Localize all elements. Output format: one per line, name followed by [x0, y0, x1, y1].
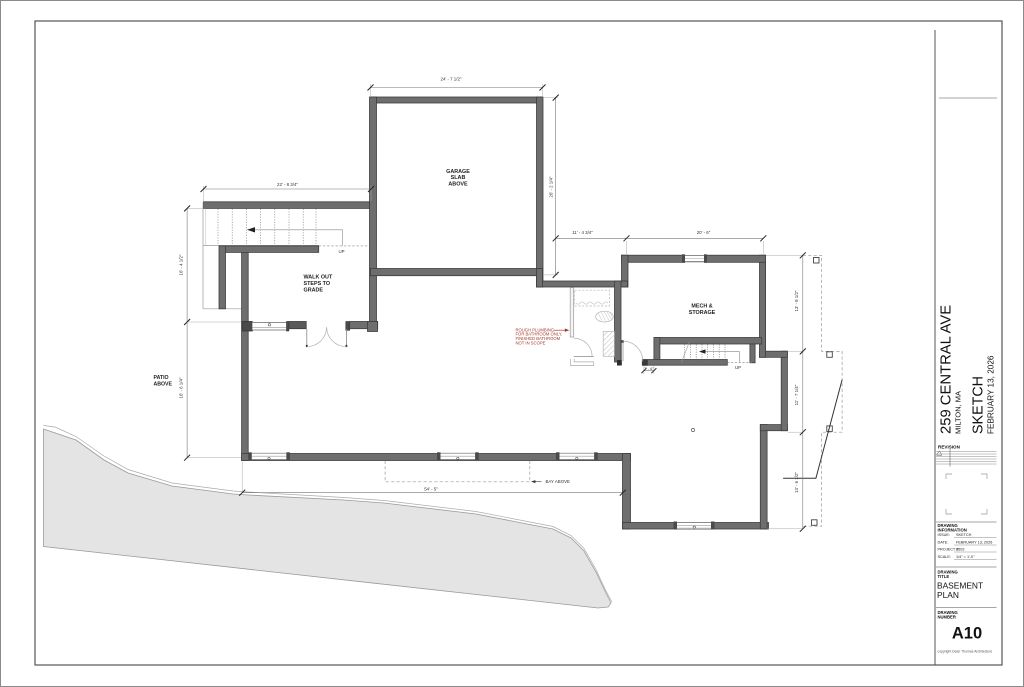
- svg-text:TITLE: TITLE: [938, 574, 950, 579]
- svg-text:24' - 7 1/2": 24' - 7 1/2": [441, 77, 462, 82]
- svg-text:FEBRUARY 13, 2026: FEBRUARY 13, 2026: [956, 541, 992, 545]
- svg-text:11' - 4 3/4": 11' - 4 3/4": [572, 230, 593, 235]
- svg-text:UP: UP: [735, 365, 741, 370]
- svg-text:SLAB: SLAB: [451, 175, 466, 181]
- svg-text:54' - 5": 54' - 5": [424, 486, 438, 491]
- svg-text:NUMBER: NUMBER: [938, 615, 956, 620]
- svg-text:PLAN: PLAN: [937, 590, 959, 600]
- svg-text:11' - 7 1/4": 11' - 7 1/4": [794, 384, 799, 405]
- svg-text:13' - 6 1/2": 13' - 6 1/2": [794, 472, 799, 493]
- svg-text:PATIO: PATIO: [154, 375, 169, 381]
- svg-text:1/4" = 1'-0": 1/4" = 1'-0": [956, 555, 975, 559]
- svg-text:22' - 8 3/4": 22' - 8 3/4": [277, 182, 298, 187]
- svg-text:MILTON, MA: MILTON, MA: [954, 391, 963, 434]
- svg-text:STEPS TO: STEPS TO: [304, 281, 331, 287]
- svg-text:20' - 6": 20' - 6": [697, 230, 711, 235]
- svg-text:BASEMENT: BASEMENT: [937, 581, 983, 591]
- svg-text:DATE:: DATE:: [938, 541, 949, 545]
- svg-text:UP: UP: [338, 249, 344, 254]
- svg-text:WALK OUT: WALK OUT: [304, 275, 333, 281]
- svg-text:ABOVE: ABOVE: [448, 182, 468, 188]
- svg-text:16' - 6 1/4": 16' - 6 1/4": [178, 377, 183, 398]
- svg-text:STORAGE: STORAGE: [689, 310, 716, 316]
- svg-text:GARAGE: GARAGE: [446, 169, 470, 175]
- svg-text:ISSUE:: ISSUE:: [938, 533, 950, 537]
- svg-text:ABOVE: ABOVE: [154, 381, 173, 387]
- svg-text:SCALE:: SCALE:: [938, 555, 952, 559]
- svg-text:SKETCH: SKETCH: [971, 376, 987, 434]
- svg-text:7' - 6": 7' - 6": [644, 367, 654, 371]
- svg-text:A10: A10: [952, 625, 982, 643]
- svg-text:259 CENTRAL AVE: 259 CENTRAL AVE: [939, 305, 955, 434]
- svg-text:SKETCH: SKETCH: [956, 533, 972, 537]
- svg-text:BAY ABOVE: BAY ABOVE: [546, 479, 571, 484]
- svg-text:MECH &: MECH &: [691, 304, 712, 310]
- svg-text:16' - 4 1/2": 16' - 4 1/2": [178, 254, 183, 275]
- svg-text:2502: 2502: [956, 548, 964, 552]
- svg-text:REVISION: REVISION: [938, 445, 961, 450]
- svg-text:FEBRUARY 13, 2026: FEBRUARY 13, 2026: [987, 355, 996, 434]
- svg-text:GRADE: GRADE: [304, 288, 324, 294]
- svg-text:26' - 2 1/4": 26' - 2 1/4": [549, 176, 554, 197]
- svg-text:INFORMATION: INFORMATION: [938, 528, 967, 533]
- svg-text:copyright Dean Thomas Archite: copyright Dean Thomas Architecture: [938, 650, 993, 654]
- svg-text:13' - 8 1/2": 13' - 8 1/2": [794, 290, 799, 311]
- svg-text:NOT IN SCOPE: NOT IN SCOPE: [516, 341, 546, 346]
